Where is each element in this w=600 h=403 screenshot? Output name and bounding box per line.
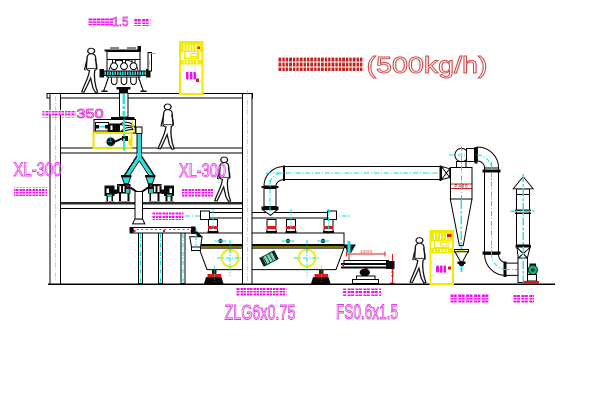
svg-text:350: 350 <box>77 106 104 121</box>
svg-text:340: 340 <box>390 268 395 277</box>
svg-text:(500kg/h): (500kg/h) <box>367 52 488 78</box>
svg-text:1500: 1500 <box>360 249 372 254</box>
svg-text:XL-300: XL-300 <box>14 160 62 181</box>
svg-text:1.5: 1.5 <box>113 14 129 29</box>
svg-text:ZLG6x0.75: ZLG6x0.75 <box>225 302 296 325</box>
svg-text:FS0.6x1.5: FS0.6x1.5 <box>336 301 398 324</box>
svg-text:XL-300: XL-300 <box>179 161 226 182</box>
